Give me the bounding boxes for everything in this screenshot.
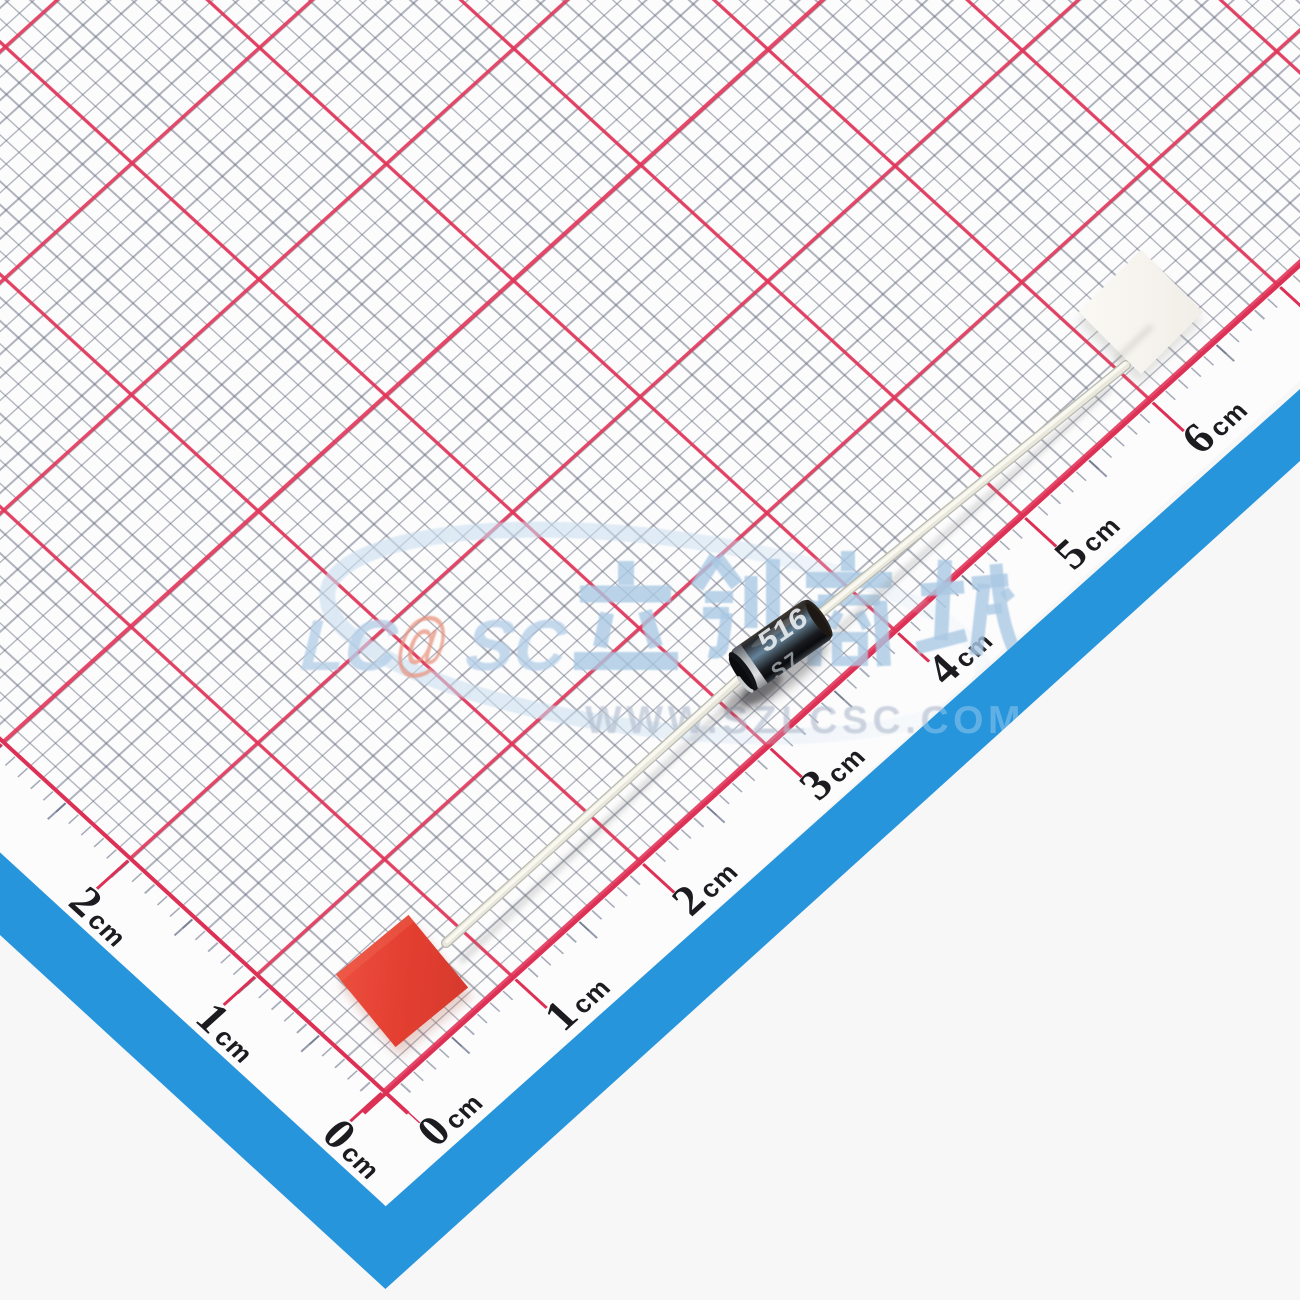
svg-text:SC: SC — [457, 606, 577, 686]
